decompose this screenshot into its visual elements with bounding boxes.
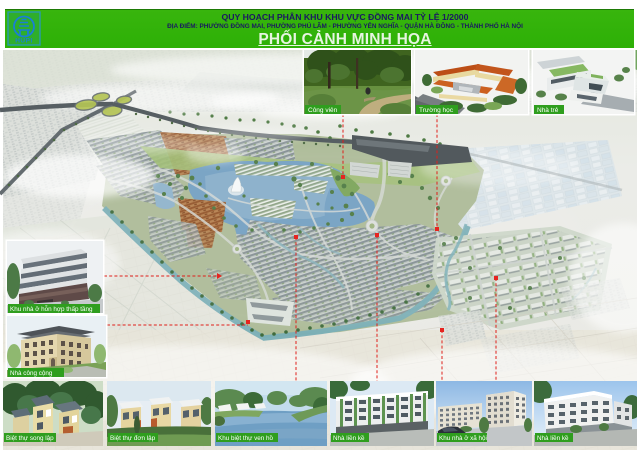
svg-text:Trường học: Trường học	[419, 107, 454, 114]
svg-text:HUPI: HUPI	[15, 38, 33, 45]
svg-text:Khu nhà ở xã hội: Khu nhà ở xã hội	[439, 434, 487, 442]
svg-text:Khu biệt thự ven hồ: Khu biệt thự ven hồ	[218, 433, 273, 442]
svg-text:Nhà liền kề: Nhà liền kề	[333, 433, 365, 442]
svg-text:Khu nhà ở hỗn hợp thấp tầng: Khu nhà ở hỗn hợp thấp tầng	[10, 304, 93, 313]
svg-text:Nhà liền kề: Nhà liền kề	[537, 433, 569, 442]
svg-text:Công viên: Công viên	[308, 107, 338, 114]
svg-text:Biệt thự đơn lập: Biệt thự đơn lập	[110, 435, 156, 442]
svg-text:Nhà công cộng: Nhà công cộng	[10, 370, 53, 377]
svg-text:Nhà trẻ: Nhà trẻ	[537, 107, 559, 114]
svg-text:Biệt thự song lập: Biệt thự song lập	[6, 435, 54, 442]
